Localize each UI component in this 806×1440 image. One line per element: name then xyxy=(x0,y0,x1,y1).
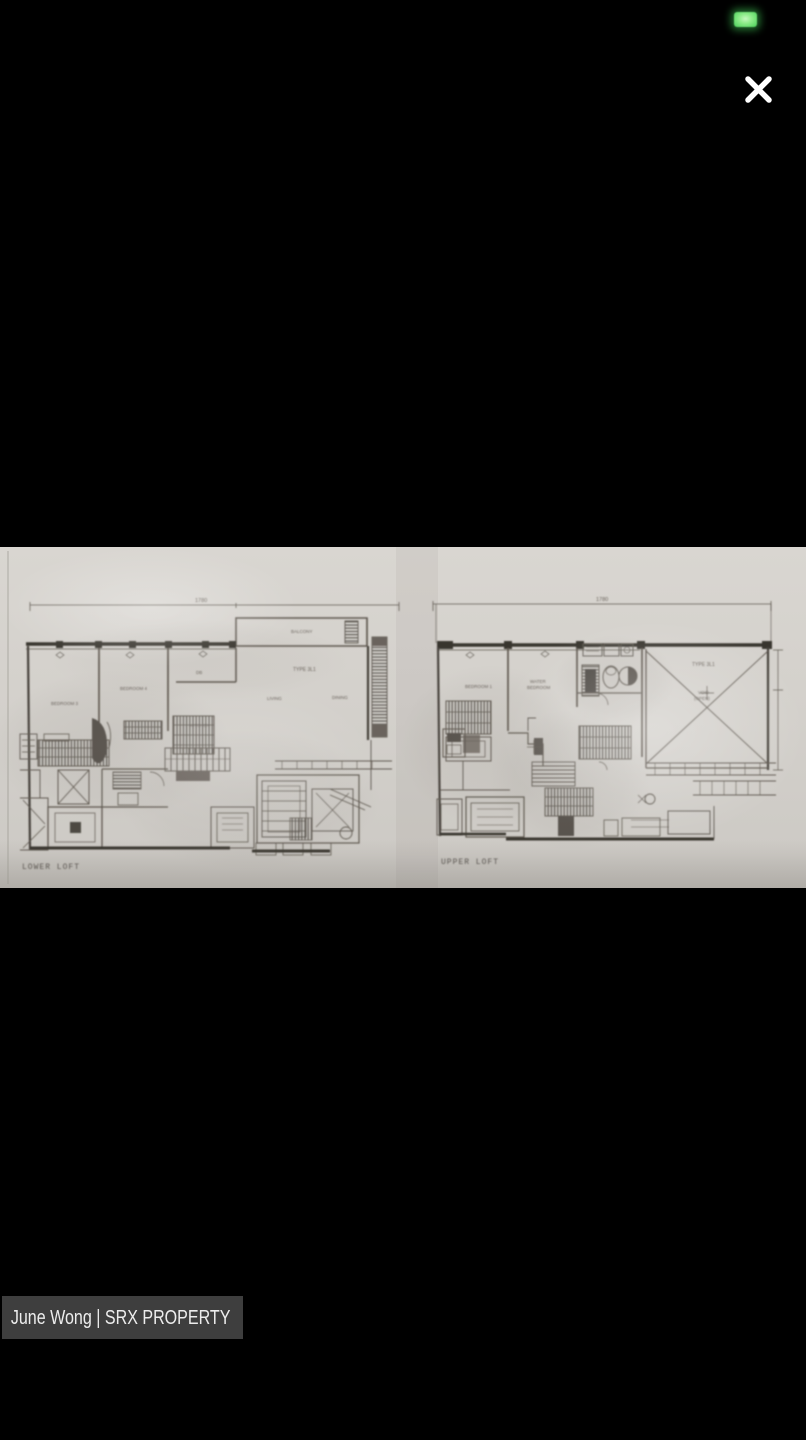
svg-text:1780: 1780 xyxy=(596,597,608,603)
